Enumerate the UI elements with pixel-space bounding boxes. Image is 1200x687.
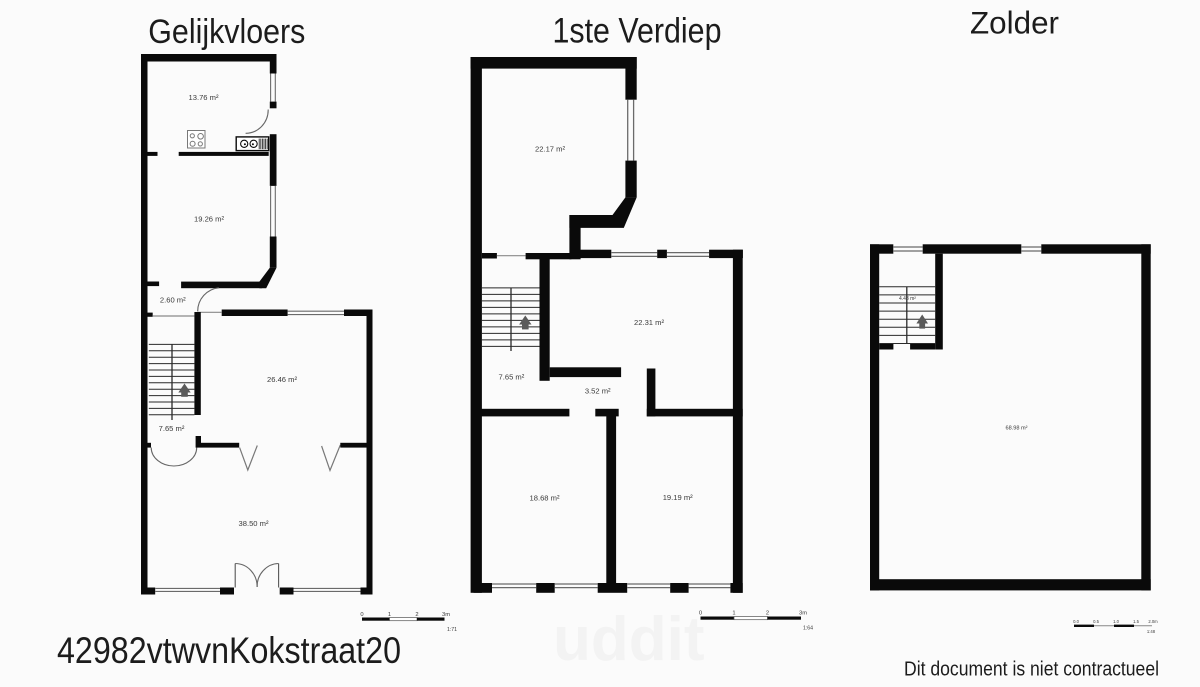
svg-text:7.65 m²: 7.65 m² (499, 373, 525, 382)
svg-text:Zolder: Zolder (970, 5, 1059, 41)
svg-text:2: 2 (415, 612, 418, 618)
svg-text:22.17 m²: 22.17 m² (535, 145, 565, 154)
svg-text:1: 1 (388, 612, 391, 618)
svg-text:22.31 m²: 22.31 m² (634, 318, 664, 327)
svg-text:2: 2 (766, 611, 769, 617)
svg-text:0.0: 0.0 (1073, 619, 1079, 624)
svg-text:68.98 m²: 68.98 m² (1005, 426, 1027, 432)
svg-text:Gelijkvloers: Gelijkvloers (148, 13, 305, 51)
svg-text:Dit document is niet contractu: Dit document is niet contractueel (904, 658, 1159, 681)
svg-text:13.76 m²: 13.76 m² (189, 93, 219, 102)
svg-text:3m: 3m (799, 611, 807, 617)
svg-text:38.50 m²: 38.50 m² (239, 519, 269, 528)
svg-text:1: 1 (732, 611, 735, 617)
svg-text:2.60 m²: 2.60 m² (160, 296, 186, 305)
svg-text:1ste Verdiep: 1ste Verdiep (553, 12, 722, 51)
svg-text:3.52 m²: 3.52 m² (585, 387, 611, 396)
svg-text:19.26 m²: 19.26 m² (194, 215, 224, 224)
svg-text:19.19 m²: 19.19 m² (663, 493, 693, 502)
svg-text:0: 0 (699, 611, 702, 617)
svg-text:uddit: uddit (553, 605, 705, 674)
svg-text:1:71: 1:71 (447, 627, 457, 633)
svg-text:1.0: 1.0 (1113, 619, 1119, 624)
svg-text:26.46 m²: 26.46 m² (267, 375, 297, 384)
svg-text:0.5: 0.5 (1093, 619, 1099, 624)
svg-text:1:64: 1:64 (803, 626, 813, 632)
svg-text:3m: 3m (442, 612, 450, 618)
svg-text:18.68 m²: 18.68 m² (530, 494, 560, 503)
svg-text:7.65 m²: 7.65 m² (159, 424, 185, 433)
svg-text:42982vtwvnKokstraat20: 42982vtwvnKokstraat20 (57, 629, 401, 671)
svg-text:0: 0 (360, 612, 363, 618)
svg-text:2.0m: 2.0m (1148, 619, 1158, 624)
svg-text:4.43 m²: 4.43 m² (899, 296, 916, 302)
svg-text:1:48: 1:48 (1147, 629, 1156, 634)
svg-text:1.5: 1.5 (1133, 619, 1139, 624)
